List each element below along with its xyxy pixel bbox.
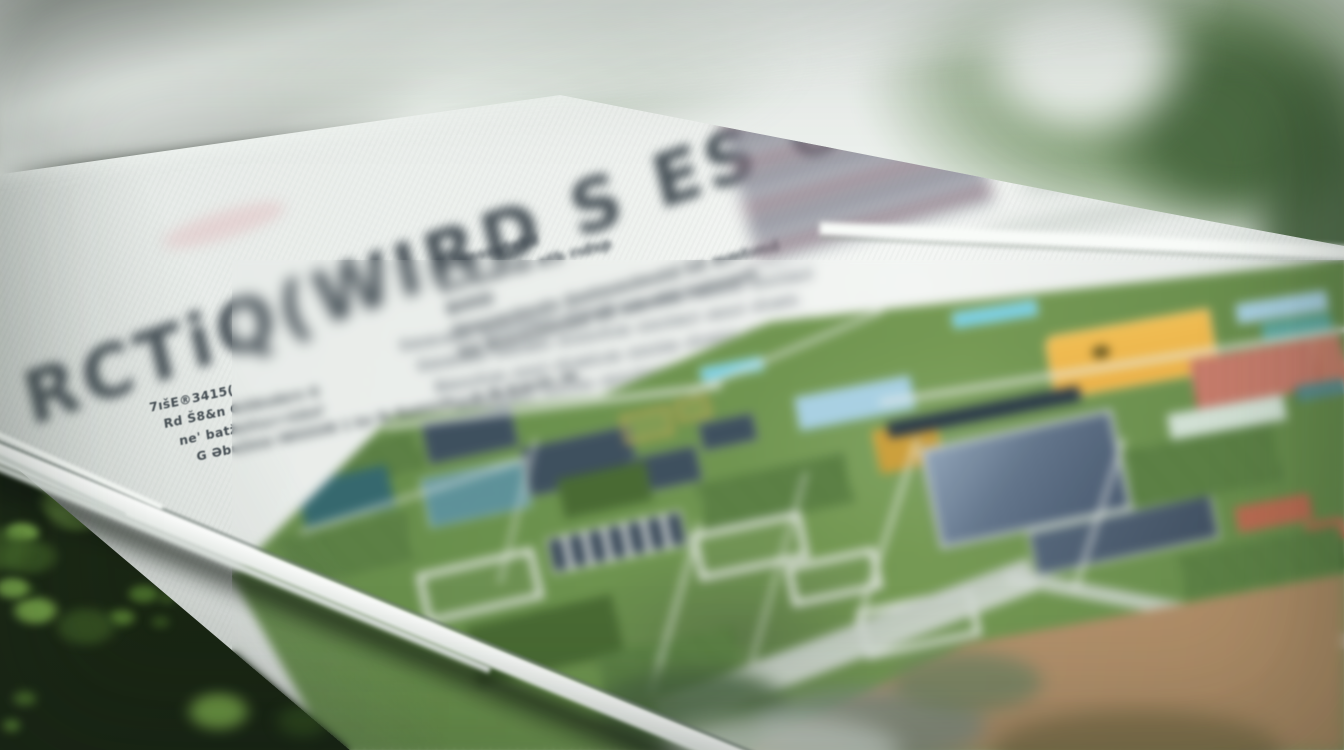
moss-clump [50,604,122,649]
moss-clump [1,719,21,732]
photo-stage: RCTiQ(WIRD S ES O IEI O Gıhlnssvtetd Enr… [0,0,1344,750]
moss-clump [10,690,38,708]
moss-clump [182,689,254,734]
moss-clump [149,615,172,629]
